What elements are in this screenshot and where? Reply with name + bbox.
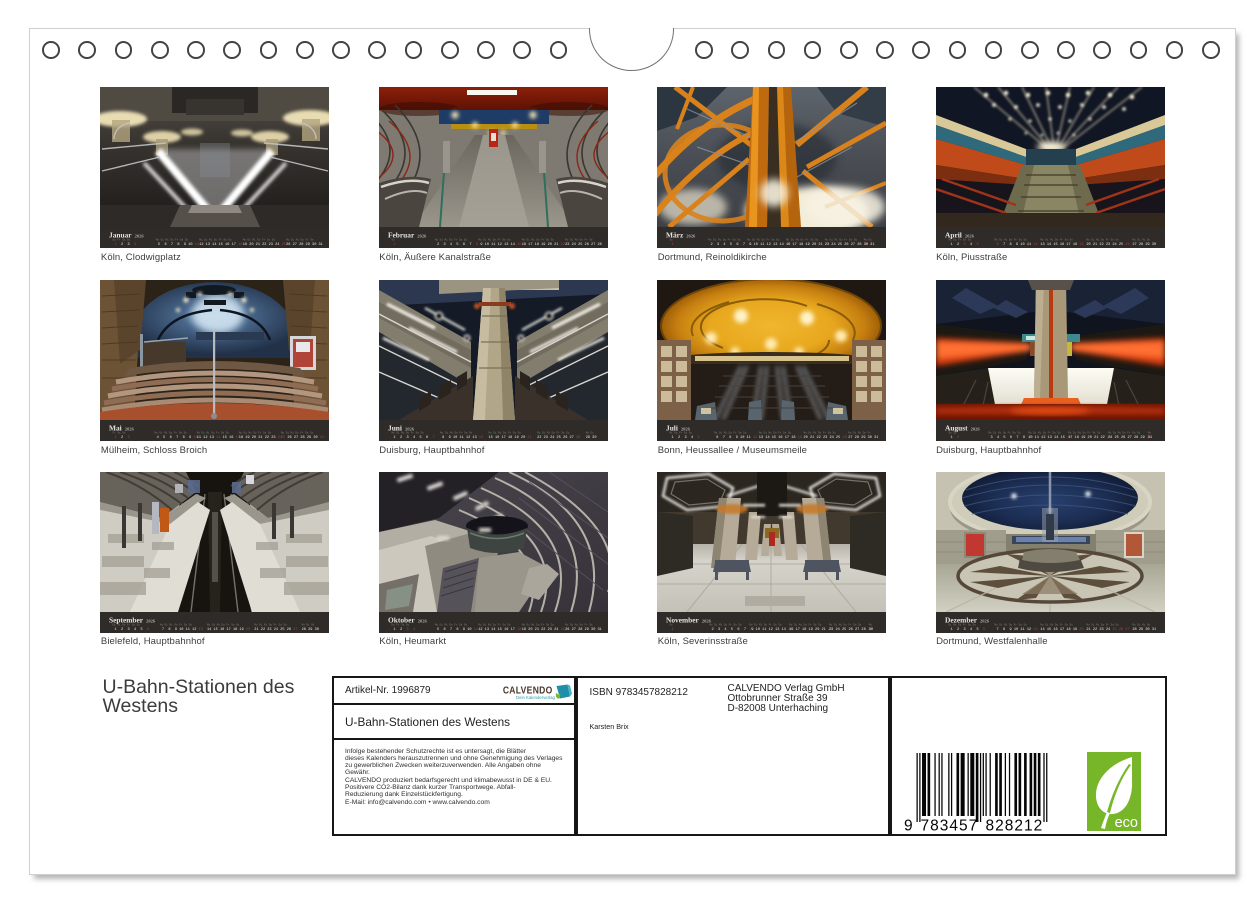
svg-text:5 6 7 8 9 10 11: 5 6 7 8 9 10 11 (156, 243, 201, 247)
svg-text:Mo Di Mi Do Fr Sa: Mo Di Mi Do Fr Sa (565, 238, 594, 242)
svg-text:Mo Di Mi Do Fr Sa So: Mo Di Mi Do Fr Sa So (255, 622, 289, 626)
svg-text:4 5 6 7 8 9 10: 4 5 6 7 8 9 10 (155, 436, 200, 440)
svg-text:28 29 30: 28 29 30 (302, 628, 321, 632)
svg-text:Mo Di Mi Do Fr Sa So: Mo Di Mi Do Fr Sa So (1086, 238, 1120, 242)
svg-text:Dein Kalenderverlag: Dein Kalenderverlag (516, 695, 556, 700)
svg-text:1 2 3: 1 2 3 (113, 436, 132, 440)
svg-text:Mo Di Mi Do Fr Sa: Mo Di Mi Do Fr Sa (565, 622, 594, 626)
svg-text:6 7 8 9 10 11 12: 6 7 8 9 10 11 12 (714, 436, 759, 440)
svg-text:Mo Di Mi Do Fr Sa So: Mo Di Mi Do Fr Sa So (988, 431, 1022, 435)
svg-text:Mo Di Mi Do Fr Sa So: Mo Di Mi Do Fr Sa So (155, 431, 189, 435)
svg-text:Do Fr Sa So: Do Fr Sa So (391, 623, 410, 626)
svg-text:Mo Di Mi: Mo Di Mi (302, 622, 317, 626)
svg-text:Mo Di Mi Do Fr Sa So: Mo Di Mi Do Fr Sa So (1108, 431, 1142, 435)
svg-text:Mo Di Mi Do Fr Sa So: Mo Di Mi Do Fr Sa So (435, 622, 469, 626)
svg-text:24 25 26 27 28 29 30: 24 25 26 27 28 29 30 (1108, 436, 1153, 440)
svg-text:28 29 30 31: 28 29 30 31 (1132, 628, 1158, 632)
svg-text:1 2 3 4: 1 2 3 4 (113, 243, 139, 247)
svg-text:11 12 13 14 15 16 17: 11 12 13 14 15 16 17 (197, 436, 242, 440)
svg-text:Mo Di Mi Do Fr Sa So: Mo Di Mi Do Fr Sa So (440, 431, 474, 435)
svg-text:13 14 15 16 17 18 19: 13 14 15 16 17 18 19 (1040, 243, 1085, 247)
svg-text:27 28 29 30 31: 27 28 29 30 31 (848, 436, 880, 440)
svg-text:So: So (391, 239, 396, 242)
svg-text:1: 1 (670, 243, 676, 247)
svg-text:19 20 21 22 23 24 25: 19 20 21 22 23 24 25 (243, 243, 288, 247)
svg-text:Mo Di Mi Do Fr Sa So: Mo Di Mi Do Fr Sa So (747, 238, 781, 242)
svg-text:So: So (670, 623, 675, 626)
svg-text:Mi Do Fr Sa So: Mi Do Fr Sa So (670, 431, 694, 435)
svg-text:29 30: 29 30 (585, 436, 598, 440)
svg-text:Mo Di Mi Do Fr Sa So: Mo Di Mi Do Fr Sa So (825, 238, 859, 242)
svg-text:7 8 9 10 11 12 13: 7 8 9 10 11 12 13 (160, 628, 205, 632)
svg-text:Mo Di Mi Do Fr Sa So: Mo Di Mi Do Fr Sa So (521, 238, 555, 242)
svg-text:Do Fr Sa So: Do Fr Sa So (113, 239, 132, 242)
svg-text:30: 30 (869, 628, 875, 632)
svg-text:Mo Di Mi Do Fr Sa So: Mo Di Mi Do Fr Sa So (1068, 431, 1102, 435)
svg-text:26 27 28 29 30 31: 26 27 28 29 30 31 (565, 628, 604, 632)
svg-text:Mo Di Mi Do Fr Sa So: Mo Di Mi Do Fr Sa So (1040, 238, 1074, 242)
svg-text:Mo: Mo (1147, 432, 1152, 435)
svg-text:9: 9 (904, 817, 913, 834)
svg-text:Mo Di Mi Do Fr Sa So: Mo Di Mi Do Fr Sa So (708, 238, 742, 242)
svg-text:1 2 3 4 5: 1 2 3 4 5 (948, 243, 980, 247)
svg-text:17 18 19 20 21 22 23: 17 18 19 20 21 22 23 (1068, 436, 1113, 440)
svg-text:So: So (670, 239, 675, 242)
svg-text:18 19 20 21 22 23 24: 18 19 20 21 22 23 24 (239, 436, 284, 440)
svg-text:22 23 24 25 26 27 28: 22 23 24 25 26 27 28 (537, 436, 582, 440)
svg-text:23 24 25 26 27 28 29: 23 24 25 26 27 28 29 (829, 628, 874, 632)
svg-text:21 22 23 24 25 26 27: 21 22 23 24 25 26 27 (255, 628, 300, 632)
svg-text:1: 1 (670, 628, 676, 632)
svg-text:783457: 783457 (920, 817, 978, 834)
svg-text:1 2 3 4: 1 2 3 4 (391, 628, 417, 632)
svg-text:27 28 29 30: 27 28 29 30 (1132, 243, 1158, 247)
svg-text:Mo Di Mi Do Fr Sa So: Mo Di Mi Do Fr Sa So (160, 622, 194, 626)
svg-text:21 22 23 24 25 26 27: 21 22 23 24 25 26 27 (1086, 628, 1131, 632)
svg-text:16 17 18 19 20 21 22: 16 17 18 19 20 21 22 (521, 243, 566, 247)
svg-text:eco: eco (1114, 815, 1137, 831)
svg-text:6 7 8 9 10 11 12: 6 7 8 9 10 11 12 (994, 243, 1039, 247)
svg-text:Mo Di Mi Do Fr Sa So: Mo Di Mi Do Fr Sa So (478, 622, 512, 626)
svg-text:16 17 18 19 20 21 22: 16 17 18 19 20 21 22 (789, 628, 834, 632)
svg-text:Mo Di Mi Do Fr Sa So: Mo Di Mi Do Fr Sa So (1040, 622, 1074, 626)
svg-text:1 2 3 4 5 6: 1 2 3 4 5 6 (948, 628, 987, 632)
svg-text:Mo Di Mi Do: Mo Di Mi Do (1132, 238, 1151, 242)
svg-text:1: 1 (391, 243, 397, 247)
svg-text:15 16 17 18 19 20 21: 15 16 17 18 19 20 21 (488, 436, 533, 440)
svg-text:Mo Di Mi Do Fr Sa So: Mo Di Mi Do Fr Sa So (239, 431, 273, 435)
svg-text:Sa So: Sa So (948, 432, 958, 435)
svg-text:Di Mi Do Fr Sa So: Di Mi Do Fr Sa So (948, 622, 977, 626)
svg-text:Mo Di: Mo Di (864, 238, 874, 242)
svg-text:1 2 3 4 5 6 7: 1 2 3 4 5 6 7 (391, 436, 436, 440)
svg-text:1 2 3 4 5 6: 1 2 3 4 5 6 (113, 628, 152, 632)
svg-text:Mo Di Mi Do Fr Sa So: Mo Di Mi Do Fr Sa So (478, 238, 512, 242)
svg-text:2 3 4 5 6 7 8: 2 3 4 5 6 7 8 (709, 628, 754, 632)
svg-text:Fr Sa So: Fr Sa So (113, 432, 128, 435)
svg-text:1 2 3 4 5: 1 2 3 4 5 (670, 436, 702, 440)
svg-text:Mo Di Mi Do Fr: Mo Di Mi Do Fr (848, 431, 872, 435)
svg-text:5 6 7 8 9 10 11: 5 6 7 8 9 10 11 (435, 628, 480, 632)
svg-text:Mo Di Mi Do Fr Sa So: Mo Di Mi Do Fr Sa So (243, 238, 277, 242)
svg-text:19 20 21 22 23 24 25: 19 20 21 22 23 24 25 (521, 628, 566, 632)
svg-text:12 13 14 15 16 17 18: 12 13 14 15 16 17 18 (478, 628, 523, 632)
svg-text:Mo Di Mi Do Fr Sa: Mo Di Mi Do Fr Sa (286, 238, 315, 242)
svg-text:Mo Di Mi Do Fr Sa So: Mo Di Mi Do Fr Sa So (994, 622, 1028, 626)
svg-text:3 4 5 6 7 8 9: 3 4 5 6 7 8 9 (988, 436, 1033, 440)
svg-text:25 26 27 28 29 30 31: 25 26 27 28 29 30 31 (281, 436, 326, 440)
svg-text:Mi Do Fr Sa So: Mi Do Fr Sa So (948, 238, 972, 242)
svg-text:20 21 22 23 24 25 26: 20 21 22 23 24 25 26 (804, 436, 849, 440)
svg-text:Mo Di: Mo Di (585, 431, 595, 435)
svg-text:Mo Di Mi Do Fr Sa So: Mo Di Mi Do Fr Sa So (749, 622, 783, 626)
svg-text:Di Mi Do Fr Sa So: Di Mi Do Fr Sa So (113, 622, 142, 626)
svg-text:Mo Di Mi Do Fr Sa So: Mo Di Mi Do Fr Sa So (786, 238, 820, 242)
svg-text:Mo: Mo (869, 623, 874, 626)
svg-text:Mo Di Mi Do Fr Sa So: Mo Di Mi Do Fr Sa So (709, 622, 743, 626)
svg-text:Mo Di Mi Do Fr Sa So: Mo Di Mi Do Fr Sa So (521, 622, 555, 626)
svg-text:9 10 11 12 13 14 15: 9 10 11 12 13 14 15 (749, 628, 794, 632)
svg-text:Mo Di Mi Do Fr Sa So: Mo Di Mi Do Fr Sa So (829, 622, 863, 626)
svg-text:Mo Di Mi Do Fr Sa So: Mo Di Mi Do Fr Sa So (789, 622, 823, 626)
svg-text:Mo Di Mi Do Fr Sa So: Mo Di Mi Do Fr Sa So (714, 431, 748, 435)
svg-text:Mo Di Mi Do Fr Sa So: Mo Di Mi Do Fr Sa So (488, 431, 522, 435)
svg-text:23 24 25 26 27 28: 23 24 25 26 27 28 (565, 243, 604, 247)
svg-text:Mo Di Mi Do Fr Sa So: Mo Di Mi Do Fr Sa So (156, 238, 190, 242)
svg-text:Mo Di Mi Do Fr Sa So: Mo Di Mi Do Fr Sa So (197, 431, 231, 435)
svg-text:Mo Di Mi Do Fr Sa So: Mo Di Mi Do Fr Sa So (207, 622, 241, 626)
svg-text:Mo Di Mi Do Fr Sa So: Mo Di Mi Do Fr Sa So (391, 431, 425, 435)
svg-text:12 13 14 15 16 17 18: 12 13 14 15 16 17 18 (200, 243, 245, 247)
svg-text:828212: 828212 (985, 817, 1043, 834)
svg-text:8 9 10 11 12 13 14: 8 9 10 11 12 13 14 (440, 436, 485, 440)
svg-text:14 15 16 17 18 19 20: 14 15 16 17 18 19 20 (1040, 628, 1085, 632)
svg-text:Mo Di Mi Do Fr Sa So: Mo Di Mi Do Fr Sa So (200, 238, 234, 242)
svg-text:9 10 11 12 13 14 15: 9 10 11 12 13 14 15 (478, 243, 523, 247)
svg-text:10 11 12 13 14 15 16: 10 11 12 13 14 15 16 (1028, 436, 1073, 440)
svg-text:Mo Di Mi Do Fr Sa So: Mo Di Mi Do Fr Sa So (281, 431, 315, 435)
svg-text:Mo Di Mi Do Fr Sa So: Mo Di Mi Do Fr Sa So (994, 238, 1028, 242)
svg-text:2 3 4 5 6 7 8: 2 3 4 5 6 7 8 (435, 243, 480, 247)
svg-text:Mo Di Mi Do Fr Sa So: Mo Di Mi Do Fr Sa So (1086, 622, 1120, 626)
svg-text:30 31: 30 31 (864, 243, 877, 247)
svg-text:Mo Di Mi Do Fr Sa So: Mo Di Mi Do Fr Sa So (759, 431, 793, 435)
svg-text:Mo Di Mi Do: Mo Di Mi Do (1132, 622, 1151, 626)
svg-text:20 21 22 23 24 25 26: 20 21 22 23 24 25 26 (1086, 243, 1131, 247)
svg-text:Mo Di Mi Do Fr Sa So: Mo Di Mi Do Fr Sa So (435, 238, 469, 242)
svg-text:26 27 28 29 30 31: 26 27 28 29 30 31 (286, 243, 325, 247)
svg-text:Mo Di Mi Do Fr Sa So: Mo Di Mi Do Fr Sa So (1028, 431, 1062, 435)
svg-text:31: 31 (1147, 436, 1153, 440)
svg-text:7 8 9 10 11 12 13: 7 8 9 10 11 12 13 (994, 628, 1039, 632)
svg-text:Mo Di Mi Do Fr Sa So: Mo Di Mi Do Fr Sa So (804, 431, 838, 435)
svg-text:14 15 16 17 18 19 20: 14 15 16 17 18 19 20 (207, 628, 252, 632)
svg-text:1 2: 1 2 (948, 436, 961, 440)
svg-text:13 14 15 16 17 18 19: 13 14 15 16 17 18 19 (759, 436, 804, 440)
svg-text:Mo Di Mi Do Fr Sa So: Mo Di Mi Do Fr Sa So (537, 431, 571, 435)
